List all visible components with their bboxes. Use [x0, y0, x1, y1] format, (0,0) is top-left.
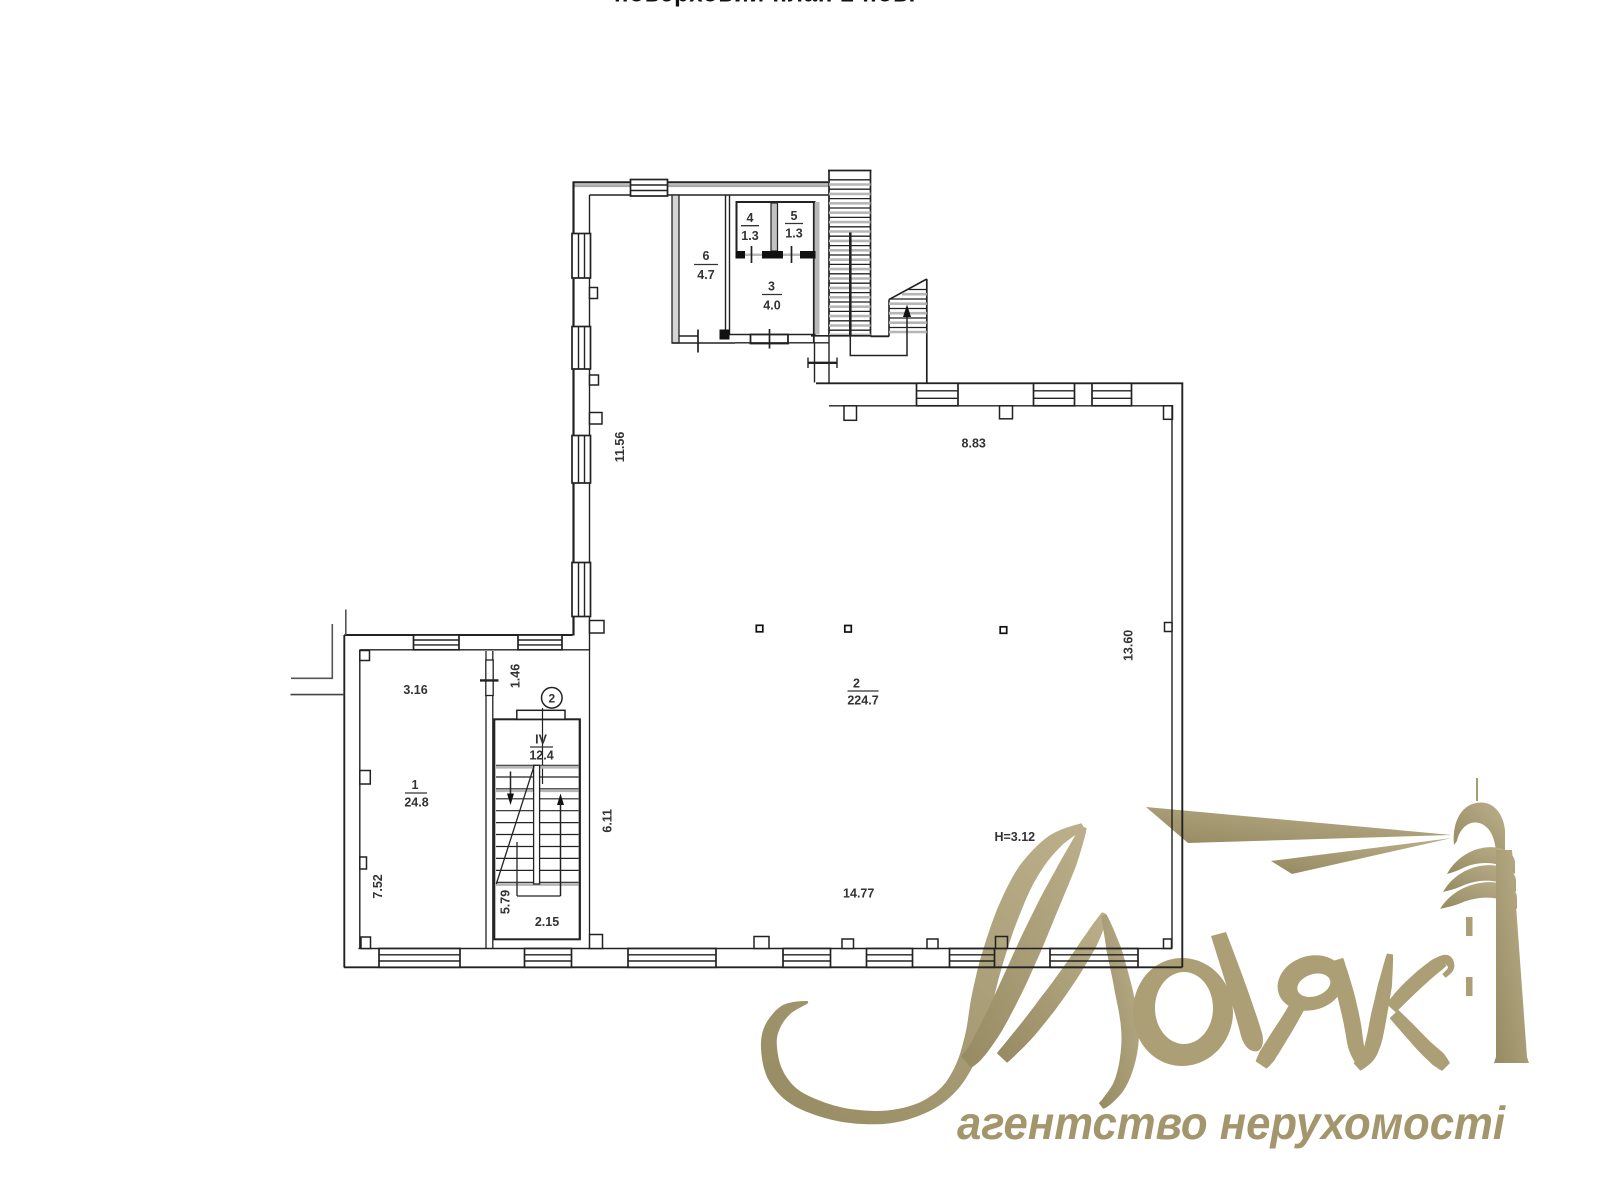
svg-text:5.79: 5.79 [499, 890, 513, 914]
svg-text:2.15: 2.15 [535, 915, 559, 929]
svg-text:поверховий план 2 пов.: поверховий план 2 пов. [614, 0, 916, 8]
svg-text:13.60: 13.60 [1122, 630, 1136, 661]
svg-text:7.52: 7.52 [371, 874, 385, 898]
svg-text:1.3: 1.3 [785, 227, 802, 241]
svg-text:4.7: 4.7 [697, 268, 714, 282]
svg-text:11.56: 11.56 [613, 432, 627, 463]
svg-text:5: 5 [791, 209, 798, 223]
svg-text:1.3: 1.3 [741, 229, 758, 243]
svg-text:2: 2 [548, 691, 555, 705]
svg-text:6.11: 6.11 [601, 809, 615, 833]
svg-text:1: 1 [412, 778, 419, 792]
svg-text:2: 2 [853, 677, 860, 691]
svg-text:6: 6 [703, 249, 710, 263]
svg-text:12.4: 12.4 [529, 749, 553, 763]
svg-text:8.83: 8.83 [962, 437, 986, 451]
svg-text:3.16: 3.16 [403, 683, 427, 697]
svg-text:24.8: 24.8 [404, 796, 428, 810]
svg-text:4: 4 [747, 211, 754, 225]
svg-text:14.77: 14.77 [843, 887, 874, 901]
svg-text:агентство нерухомості: агентство нерухомості [957, 1097, 1506, 1149]
svg-text:H=3.12: H=3.12 [994, 830, 1035, 844]
svg-text:IV: IV [535, 733, 547, 747]
svg-text:224.7: 224.7 [847, 694, 878, 708]
svg-text:1.46: 1.46 [508, 664, 522, 688]
svg-text:4.0: 4.0 [763, 299, 780, 313]
svg-text:3: 3 [768, 280, 775, 294]
